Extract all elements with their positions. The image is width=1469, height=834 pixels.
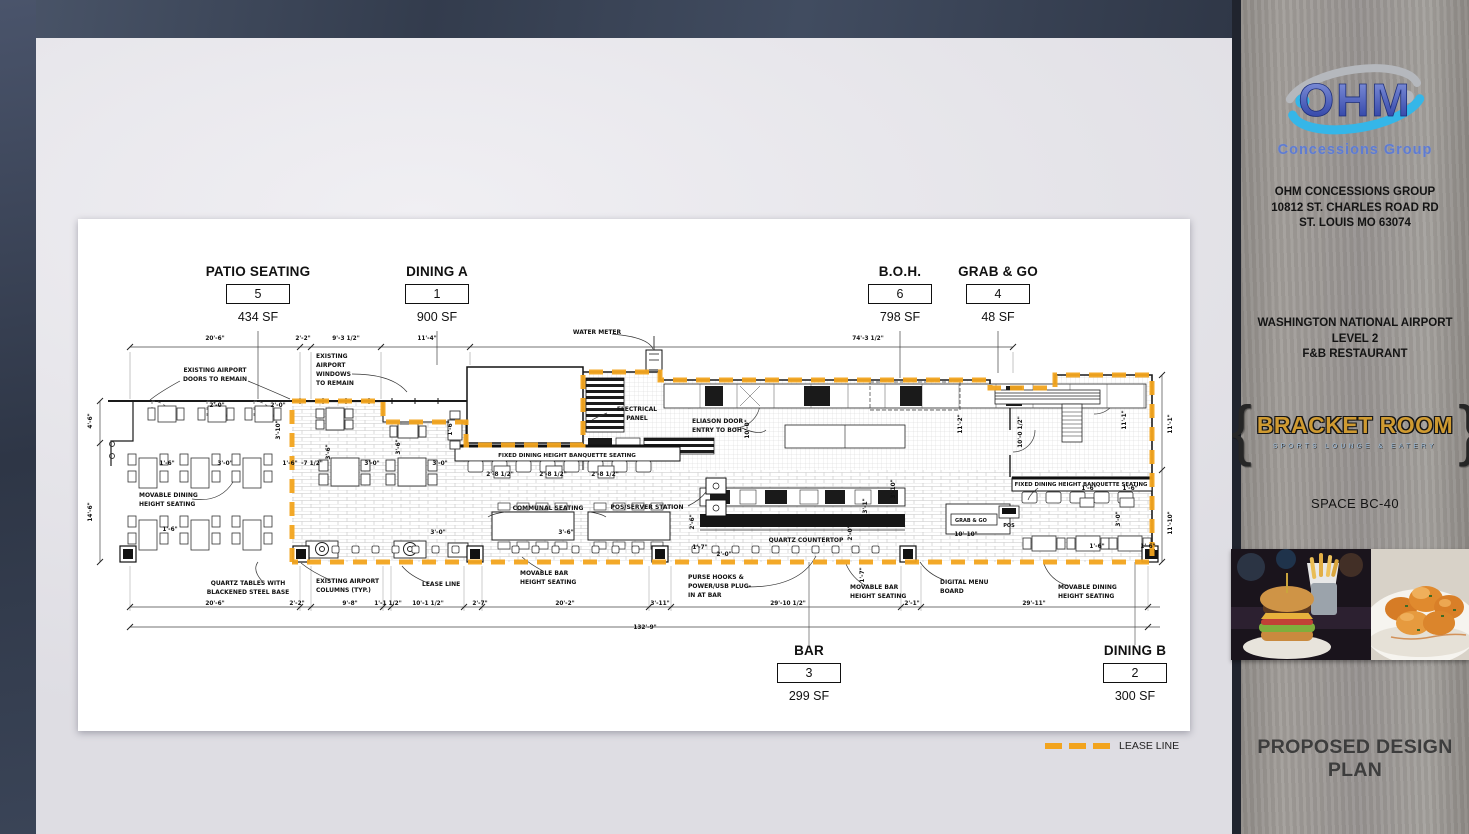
plan-shape [232, 454, 240, 465]
zone-label-dining-a: DINING A 1 900 SF [362, 264, 512, 324]
navy-border-top [0, 0, 1232, 38]
plan-shape [592, 546, 599, 553]
plan-dimension: 1'-6" [448, 420, 454, 435]
plan-shape [1094, 492, 1109, 503]
plan-shape [772, 546, 779, 553]
plan-shape [232, 533, 240, 544]
plan-dimension: 1'-6" [1122, 486, 1137, 492]
plan-shape [243, 520, 261, 550]
patio-posts [110, 442, 115, 459]
sheet-title: PROPOSED DESIGN PLAN [1241, 736, 1469, 782]
bracket-room-logo: { BRACKET ROOM SPORTS LOUNGE & EATERY } [1241, 398, 1469, 464]
plan-shape [564, 461, 579, 472]
left-brace-glyph: { [1231, 395, 1252, 466]
plan-dimension: 2'-0" [716, 552, 731, 558]
water-meter [646, 336, 662, 370]
plan-dimension: 3'-0" [432, 461, 447, 467]
zone-number-box: 4 [966, 284, 1030, 304]
plan-dimension: 9'-3 1/2" [332, 336, 359, 342]
plan-dimension: 3'-6" [326, 444, 332, 459]
venue-name: BRACKET ROOM [1257, 412, 1453, 439]
proposed-design-plan-page: EXISTING AIRPORTDOORS TO REMAINEXISTINGA… [0, 0, 1469, 834]
plan-dimension: 3'-1" [863, 498, 869, 513]
plan-dimension: 3'-6" [558, 530, 573, 536]
plan-shape [552, 546, 559, 553]
plan-annotation: FIXED DINING HEIGHT BANQUETTE SEATING [498, 453, 636, 459]
plan-dimension: 11'-4" [417, 336, 436, 342]
zone-number: 2 [1132, 666, 1139, 680]
lease-dash-swatch [1045, 743, 1062, 749]
zone-area: 300 SF [1060, 689, 1210, 703]
plan-dimension: 14'-6" [88, 502, 94, 521]
address-line: 10812 ST. CHARLES ROAD RD [1241, 201, 1469, 217]
zone-label-grab-and-go: GRAB & GO 4 48 SF [923, 264, 1073, 324]
plan-shape [264, 533, 272, 544]
plan-annotation: MOVABLE DININGHEIGHT SEATING [1058, 584, 1117, 600]
plan-annotation: POS/SERVER STATION [610, 504, 683, 511]
plan-annotation: MOVABLE BARHEIGHT SEATING [850, 584, 906, 600]
zone-label-patio-seating: PATIO SEATING 5 434 SF [183, 264, 333, 324]
plan-shape [332, 546, 339, 553]
plan-shape [264, 471, 272, 482]
plan-shape [245, 408, 252, 420]
zone-label-dining-b: DINING B 2 300 SF [1060, 643, 1210, 703]
plan-shape [296, 549, 306, 559]
zone-title: DINING A [362, 264, 512, 279]
plan-dimension: 3'-0" [1116, 511, 1122, 526]
plan-shape [1022, 492, 1037, 503]
plan-shape [512, 546, 519, 553]
dining-b-tables [1023, 536, 1151, 551]
plan-shape [180, 516, 188, 527]
plan-shape [812, 546, 819, 553]
plan-shape [372, 546, 379, 553]
zone-title: DINING B [1060, 643, 1210, 658]
plan-shape [227, 408, 234, 420]
plan-dimension: 11'-1" [1122, 410, 1128, 429]
plan-shape [177, 408, 184, 420]
plan-shape [432, 546, 439, 553]
plan-shape [212, 533, 220, 544]
venue-tagline: SPORTS LOUNGE & EATERY [1257, 443, 1453, 450]
plan-shape [392, 546, 399, 553]
plan-shape [128, 533, 136, 544]
plan-dimension: 3'-0" [430, 530, 445, 536]
zone-area: 299 SF [734, 689, 884, 703]
plan-annotation: GRAB & GO [955, 518, 987, 524]
plan-shape [852, 546, 859, 553]
plan-shape [212, 471, 220, 482]
plan-dimension: 3'-0" [364, 461, 379, 467]
plan-dimension: 2'-8 1/2" [486, 472, 513, 478]
plan-annotation: QUARTZ TABLES WITHBLACKENED STEEL BASE [207, 580, 290, 596]
zone-number: 4 [995, 287, 1002, 301]
ohm-logo-subtitle: Concessions Group [1241, 142, 1469, 158]
plan-annotation: MOVABLE BARHEIGHT SEATING [520, 570, 576, 586]
plan-shape [792, 546, 799, 553]
plan-shape [232, 516, 240, 527]
plan-annotation: MOVABLE DININGHEIGHT SEATING [139, 492, 198, 508]
plan-shape [732, 546, 739, 553]
plan-dimension: 20'-2" [555, 601, 574, 607]
plan-shape [655, 549, 665, 559]
plan-annotation: EXISTING AIRPORTDOORS TO REMAIN [183, 367, 247, 383]
plan-dimension: 29'-10 1/2" [770, 601, 806, 607]
plan-shape [212, 516, 220, 527]
zone-title: PATIO SEATING [183, 264, 333, 279]
zone-label-bar: BAR 3 299 SF [734, 643, 884, 703]
plan-shape [198, 408, 205, 420]
plan-dimension: 2'-1" [904, 601, 919, 607]
lease-dash-swatch [1093, 743, 1110, 749]
zone-number-box: 2 [1103, 663, 1167, 683]
plan-annotation: EXISTINGAIRPORTWINDOWSTO REMAIN [316, 353, 354, 387]
lease-line-legend: LEASE LINE [1045, 740, 1179, 752]
plan-shape [470, 549, 480, 559]
plan-dimension: 20'-6" [205, 336, 224, 342]
plan-shape [1032, 536, 1056, 551]
plan-shape [498, 542, 510, 549]
ohm-logo: OHM [1241, 48, 1469, 148]
void-shaft [467, 367, 583, 443]
plan-shape [148, 408, 155, 420]
plan-dimension: 10'-0 1/2" [1018, 416, 1024, 448]
legend-label: LEASE LINE [1119, 740, 1179, 752]
plan-shape [264, 454, 272, 465]
plan-dimension: 3'-0" [217, 461, 232, 467]
plan-shape [612, 546, 619, 553]
plan-shape [1023, 538, 1031, 549]
plan-annotation: POS [1003, 523, 1015, 529]
plan-dimension: 1'-1 1/2" [374, 601, 401, 607]
zone-number: 3 [806, 666, 813, 680]
plan-dimension: 20'-6" [205, 601, 224, 607]
plan-dimension: 2'-6" [690, 514, 696, 529]
plan-dimension: 2'-0" [270, 403, 285, 409]
plan-shape [1046, 492, 1061, 503]
plan-annotation: QUARTZ COUNTERTOP [769, 537, 844, 544]
company-address: OHM CONCESSIONS GROUP 10812 ST. CHARLES … [1241, 185, 1469, 232]
plan-dimension: 74'-3 1/2" [852, 336, 884, 342]
plan-dimension: 1'-6" [1089, 544, 1104, 550]
plan-shape [572, 546, 579, 553]
plan-shape [274, 408, 281, 420]
navy-border-left [0, 0, 36, 834]
plan-dimension: 1'-7" [860, 567, 866, 582]
plan-shape [594, 503, 606, 510]
plan-shape [903, 549, 913, 559]
project-line: LEVEL 2 [1241, 332, 1469, 348]
space-label: SPACE BC-40 [1241, 496, 1469, 511]
plan-shape [516, 461, 531, 472]
plan-shape [128, 471, 136, 482]
plan-dimension: 9'-8" [342, 601, 357, 607]
plan-dimension: 3'-10" [276, 420, 282, 439]
plan-dimension: 10'-0" [745, 419, 751, 438]
plan-shape [1080, 498, 1094, 507]
plan-dimension: 1'-6" [1140, 544, 1155, 550]
plan-shape [160, 533, 168, 544]
plan-dimension: 10'-10" [954, 532, 977, 538]
plan-shape [1109, 538, 1117, 549]
plan-dimension: 11'-1" [1168, 414, 1174, 433]
zone-area: 48 SF [923, 310, 1073, 324]
plan-dimension: 11'-10" [1168, 511, 1174, 534]
plan-shape [468, 461, 483, 472]
plan-annotation: EXISTING AIRPORTCOLUMNS (TYP.) [316, 578, 380, 594]
plan-shape [1118, 536, 1142, 551]
plan-shape [139, 458, 157, 488]
zone-area: 900 SF [362, 310, 512, 324]
plan-dimension: 2'-2" [295, 336, 310, 342]
plan-dimension: 29'-11" [1022, 601, 1045, 607]
plan-dimension: 1'-7" [692, 545, 707, 551]
plan-dimension: 132'-9" [633, 625, 656, 631]
plan-shape [160, 471, 168, 482]
zone-title: GRAB & GO [923, 264, 1073, 279]
fried-shrimp-photo [1371, 549, 1469, 660]
burger-and-fries-photo [1231, 549, 1371, 660]
plan-dimension: 3'-11" [650, 601, 669, 607]
zone-number: 1 [434, 287, 441, 301]
plan-dimension: 4'-6" [88, 413, 94, 428]
plan-shape [180, 533, 188, 544]
plan-dimension: 2'-8 1/2" [591, 472, 618, 478]
plan-annotation: COMMUNAL SEATING [513, 505, 584, 512]
plan-shape [1057, 538, 1065, 549]
plan-shape [243, 458, 261, 488]
project-line: F&B RESTAURANT [1241, 347, 1469, 363]
plan-shape [632, 546, 639, 553]
plan-dimension: 1'-6" [282, 461, 297, 467]
plan-shape [160, 516, 168, 527]
plan-shape [264, 516, 272, 527]
plan-shape [128, 454, 136, 465]
project-info: WASHINGTON NATIONAL AIRPORT LEVEL 2 F&B … [1241, 316, 1469, 363]
plan-shape [832, 546, 839, 553]
plan-shape [191, 458, 209, 488]
plan-dimension: 11'-2" [958, 414, 964, 433]
plan-shape [532, 546, 539, 553]
title-block-sidebar: OHM Concessions Group OHM CONCESSIONS GR… [1241, 0, 1469, 834]
right-brace-glyph: } [1458, 395, 1469, 466]
plan-dimension: 3'-10" [891, 479, 897, 498]
plan-dimension: 2'-2" [289, 601, 304, 607]
plan-dimension: 1'-6" [162, 527, 177, 533]
plan-shape [752, 546, 759, 553]
plan-shape [1120, 498, 1134, 507]
plan-dimension: 2'-8 1/2" [539, 472, 566, 478]
zone-title: BAR [734, 643, 884, 658]
plan-shape [191, 520, 209, 550]
zone-number: 5 [255, 287, 262, 301]
address-line: ST. LOUIS MO 63074 [1241, 216, 1469, 232]
zone-number-box: 3 [777, 663, 841, 683]
plan-shape [139, 520, 157, 550]
patio-tables [128, 406, 281, 550]
plan-shape [128, 516, 136, 527]
zone-area: 434 SF [183, 310, 333, 324]
plan-annotation: PURSE HOOKS &POWER/USB PLUG-IN AT BAR [688, 574, 752, 599]
plan-shape [452, 546, 459, 553]
plan-shape [872, 546, 879, 553]
plan-shape [1067, 538, 1075, 549]
plan-dimension: -7 1/2" [301, 461, 323, 467]
zone-number-box: 5 [226, 284, 290, 304]
plan-annotation: DIGITAL MENUBOARD [940, 579, 989, 595]
plan-shape [352, 546, 359, 553]
address-line: OHM CONCESSIONS GROUP [1241, 185, 1469, 201]
zone-number: 6 [897, 287, 904, 301]
plan-shape [232, 471, 240, 482]
project-line: WASHINGTON NATIONAL AIRPORT [1241, 316, 1469, 332]
plan-shape [158, 406, 176, 422]
food-photos [1231, 549, 1469, 660]
plan-shape [412, 546, 419, 553]
plan-annotation: LEASE LINE [422, 581, 460, 588]
plan-annotation: WATER METER [573, 329, 622, 336]
plan-shape [498, 503, 510, 510]
plan-shape [636, 461, 651, 472]
plan-dimension: 2'-7" [472, 601, 487, 607]
lease-dash-swatch [1069, 743, 1086, 749]
zone-number-box: 1 [405, 284, 469, 304]
plan-dimension: 10'-1 1/2" [412, 601, 444, 607]
plan-dimension: 2'-0" [209, 403, 224, 409]
plan-dimension: 1'-6" [1081, 486, 1096, 492]
plan-shape [123, 549, 133, 559]
ohm-wordmark: OHM [1298, 74, 1411, 126]
plan-dimension: 2'-0" [848, 525, 854, 540]
plan-shape [180, 471, 188, 482]
plan-dimension: 1'-6" [159, 461, 174, 467]
plan-dimension: 3'-6" [396, 439, 402, 454]
plan-shape [180, 454, 188, 465]
